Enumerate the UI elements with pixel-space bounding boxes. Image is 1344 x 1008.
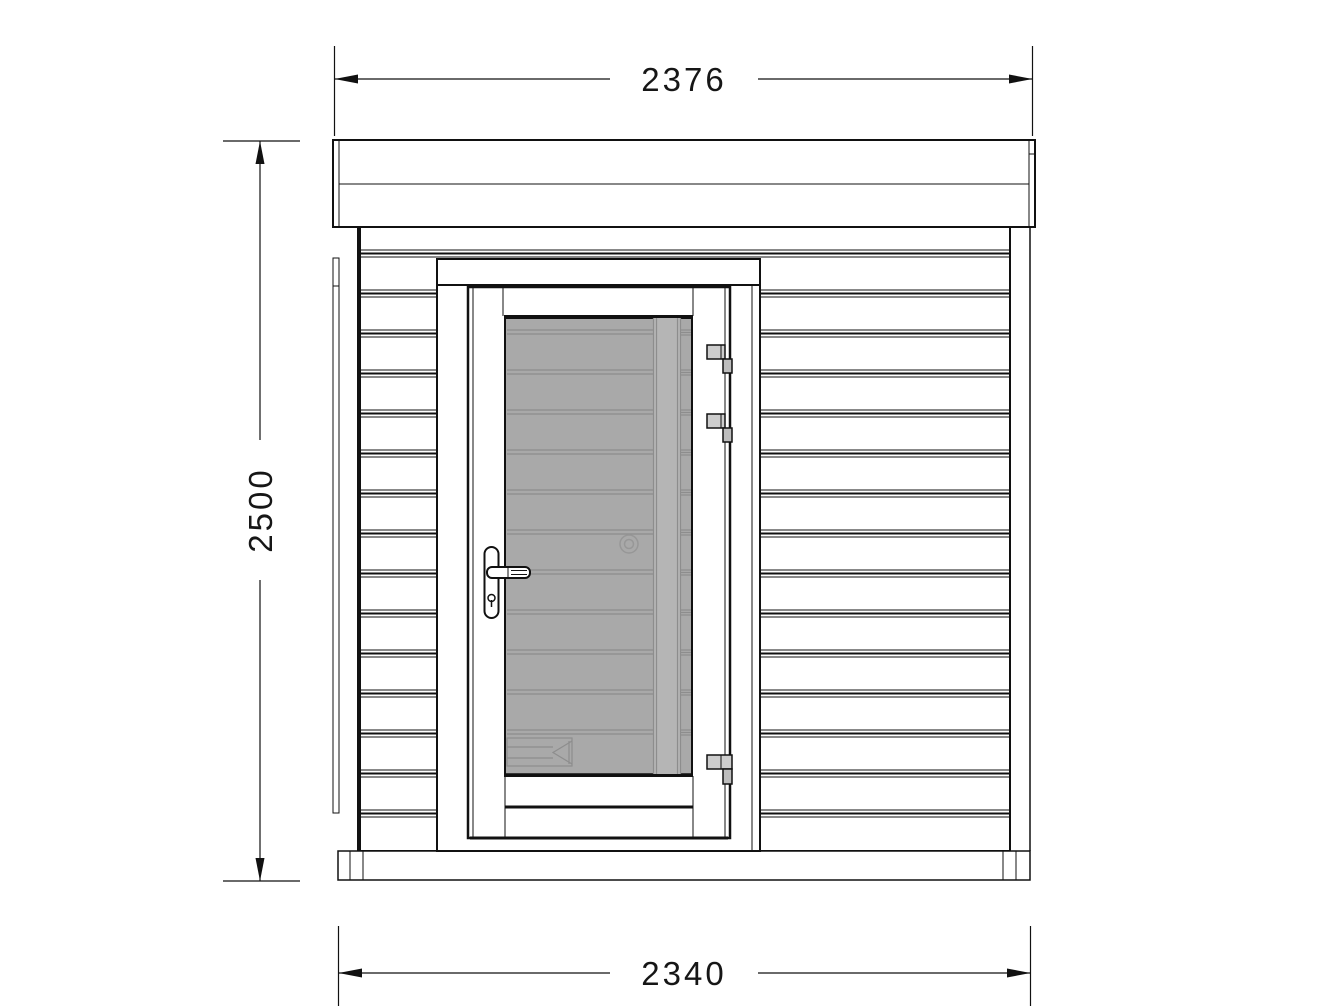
dimension-width-top: 2376 — [335, 46, 1033, 136]
door-assembly — [437, 259, 760, 851]
arrowhead-left — [339, 969, 363, 978]
dimension-label-width-bottom: 2340 — [641, 955, 726, 992]
arrowhead-left — [335, 75, 359, 84]
arrowhead-down — [256, 858, 265, 881]
dimension-width-bottom: 2340 — [339, 926, 1031, 1006]
dimension-label-height-left: 2500 — [242, 467, 279, 552]
technical-drawing-canvas: 2376 2500 2340 — [0, 0, 1344, 1008]
hinge-plate — [707, 414, 725, 428]
shed-front-elevation-drawing: 2376 2500 2340 — [0, 0, 1344, 1008]
corner-trim-left-sliver — [333, 258, 339, 813]
hinge-knuckle — [723, 428, 732, 442]
hinge-knuckle — [723, 359, 732, 373]
base-band-outline — [338, 851, 1030, 880]
arrowhead-right — [1009, 75, 1033, 84]
dimension-height-left: 2500 — [223, 141, 300, 881]
dimension-label-width-top: 2376 — [641, 61, 726, 98]
hinge-plate — [707, 755, 732, 769]
hinge-knuckle — [723, 769, 732, 784]
handle-backplate — [485, 547, 499, 618]
arrowhead-right — [1007, 969, 1031, 978]
arrowhead-up — [256, 141, 265, 164]
base-band — [338, 851, 1030, 880]
door-glass-panel — [505, 316, 692, 776]
hinge-plate — [707, 345, 725, 359]
roof-fascia — [333, 140, 1035, 227]
